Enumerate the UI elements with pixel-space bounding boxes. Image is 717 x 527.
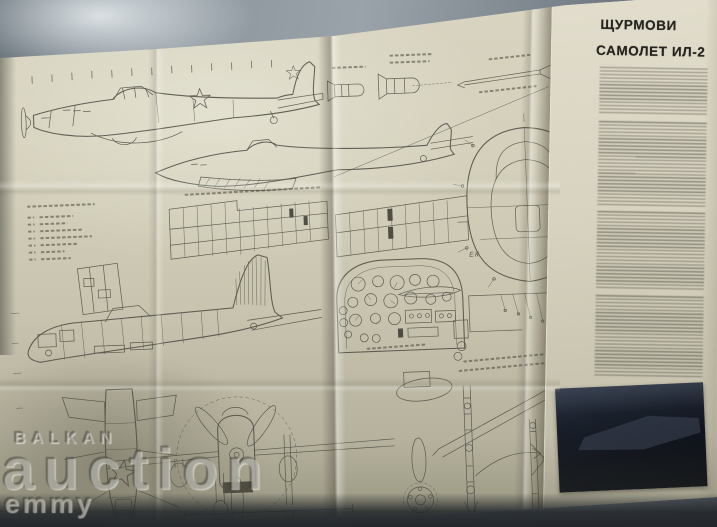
article-paragraph bbox=[596, 211, 705, 291]
aircraft-photo bbox=[555, 382, 707, 492]
photo-of-poster: ЕК ЩУРМОВИ САМОЛЕТ ИЛ-2 BALKAN auction e… bbox=[0, 0, 717, 527]
poster-sheet: ЕК ЩУРМОВИ САМОЛЕТ ИЛ-2 bbox=[0, 0, 717, 527]
photo-sky-area bbox=[555, 382, 704, 415]
cutaway-side-view bbox=[25, 253, 323, 363]
right-text-panel: ЩУРМОВИ САМОЛЕТ ИЛ-2 bbox=[543, 0, 717, 527]
article-paragraph bbox=[594, 295, 703, 379]
bomb-details bbox=[327, 71, 453, 101]
poster-title-line-1: ЩУРМОВИ bbox=[600, 17, 677, 33]
spar-detail bbox=[77, 263, 123, 315]
instrument-panel bbox=[335, 257, 469, 365]
margin-marks bbox=[11, 313, 23, 408]
article-paragraph bbox=[597, 121, 706, 207]
table-edge bbox=[0, 493, 717, 527]
article-paragraph bbox=[599, 67, 708, 117]
side-view-lower bbox=[154, 123, 474, 195]
wing-structure-plan bbox=[169, 197, 329, 259]
callout-ticks-row bbox=[32, 60, 272, 83]
side-view-main bbox=[19, 61, 324, 148]
wing-structure-2 bbox=[335, 196, 469, 257]
poster-title-line-2: САМОЛЕТ ИЛ-2 bbox=[596, 43, 706, 60]
